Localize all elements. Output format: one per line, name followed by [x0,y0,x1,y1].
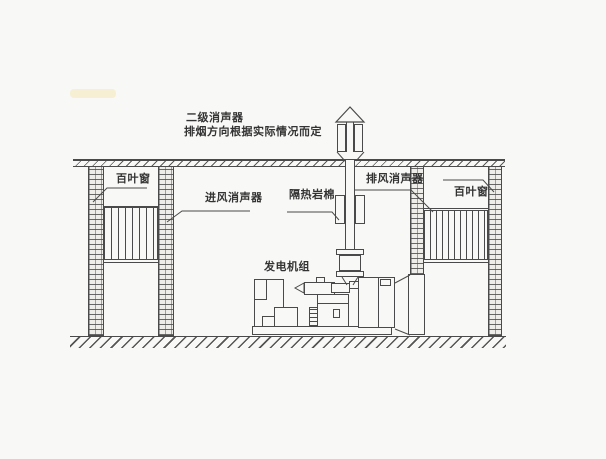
label-generator-set: 发电机组 [264,261,310,274]
bell-mouth-duct-lines [395,275,410,335]
label-intake-silencer: 进风消声器 [205,192,263,205]
leader-exhaust-silencer [355,190,433,212]
stack-taper-lines [337,152,364,161]
label-rock-wool: 隔热岩棉 [289,189,335,202]
rain-cap-arrow-icon [336,107,364,122]
line-overlay [0,0,606,459]
label-exhaust-silencer: 排风消声器 [366,173,424,186]
leader-louver-left [93,188,147,202]
label-smoke-direction-note: 排烟方向根据实际情况而定 [184,126,322,139]
label-louver-window-left: 百叶窗 [116,173,151,186]
leader-intake-silencer [167,211,250,222]
leader-rock-wool [287,212,339,220]
air-cleaner-cone [295,283,304,293]
diagram-canvas: 二级消声器 排烟方向根据实际情况而定 百叶窗 进风消声器 隔热岩棉 排风消声器 … [0,0,606,459]
label-louver-window-right: 百叶窗 [454,186,489,199]
label-secondary-silencer: 二级消声器 [186,112,244,125]
muffler-funnel-lines [342,277,358,285]
